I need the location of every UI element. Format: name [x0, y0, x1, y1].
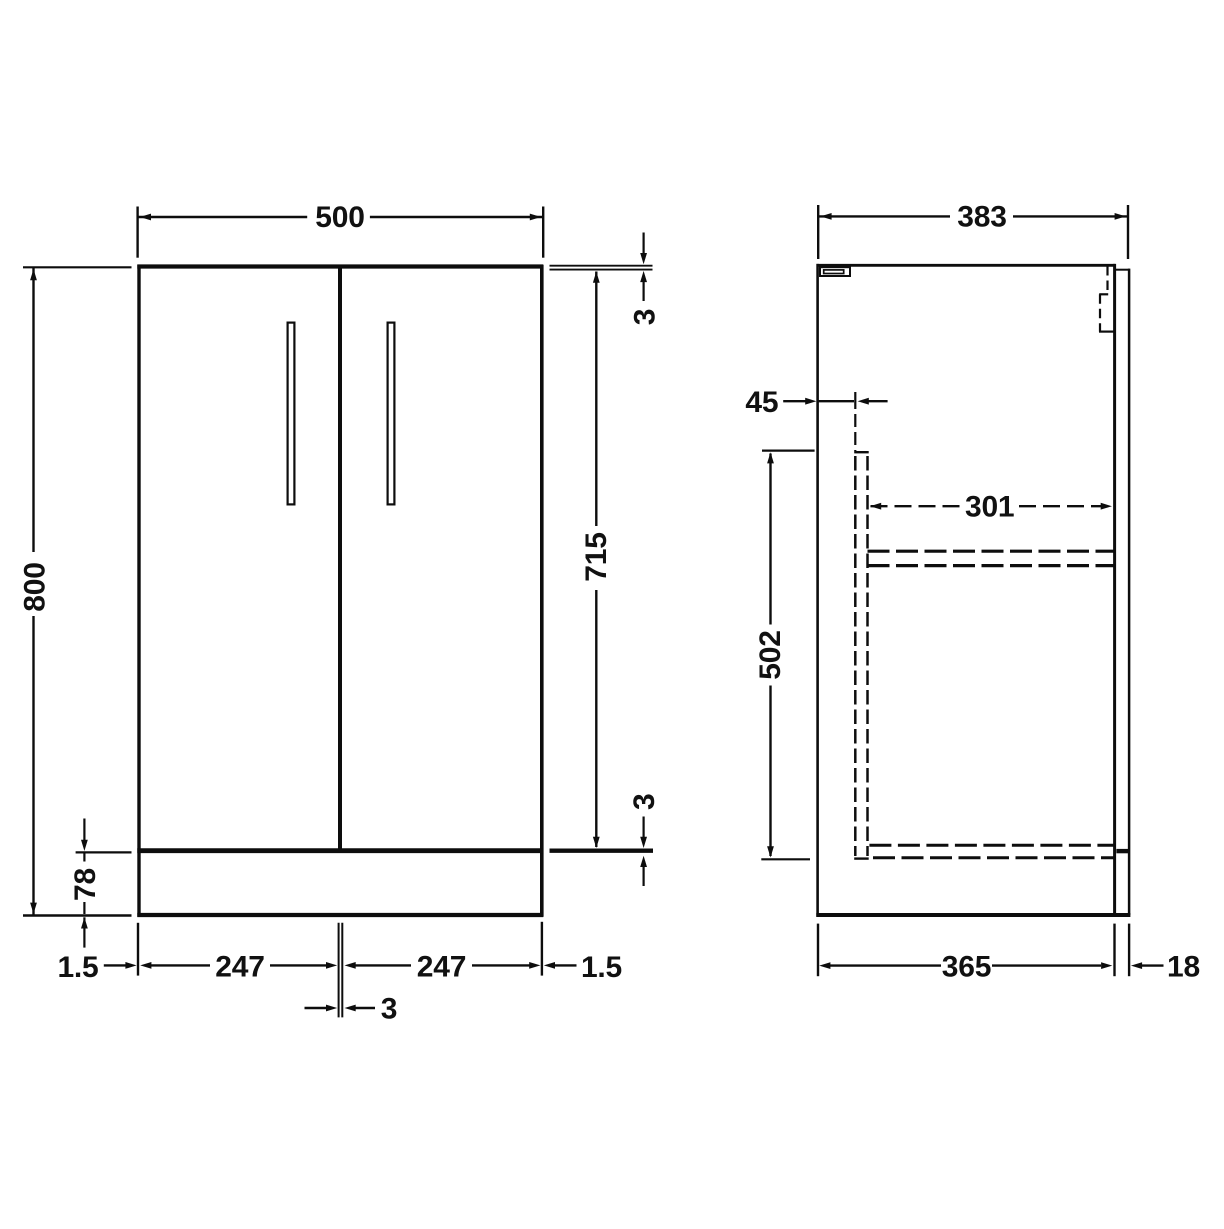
svg-text:502: 502 [754, 630, 787, 679]
svg-text:800: 800 [18, 562, 51, 611]
svg-text:247: 247 [215, 950, 264, 983]
svg-text:365: 365 [942, 950, 991, 983]
svg-text:247: 247 [417, 950, 466, 983]
svg-text:383: 383 [957, 201, 1006, 234]
svg-text:1.5: 1.5 [581, 951, 622, 984]
svg-text:3: 3 [381, 993, 398, 1026]
svg-text:500: 500 [315, 201, 364, 234]
svg-text:3: 3 [629, 309, 662, 326]
svg-text:45: 45 [745, 386, 778, 419]
svg-text:78: 78 [69, 868, 102, 901]
svg-text:1.5: 1.5 [57, 951, 98, 984]
svg-text:301: 301 [965, 490, 1014, 523]
svg-text:3: 3 [628, 794, 661, 811]
svg-text:18: 18 [1167, 950, 1200, 983]
svg-text:715: 715 [580, 532, 613, 581]
